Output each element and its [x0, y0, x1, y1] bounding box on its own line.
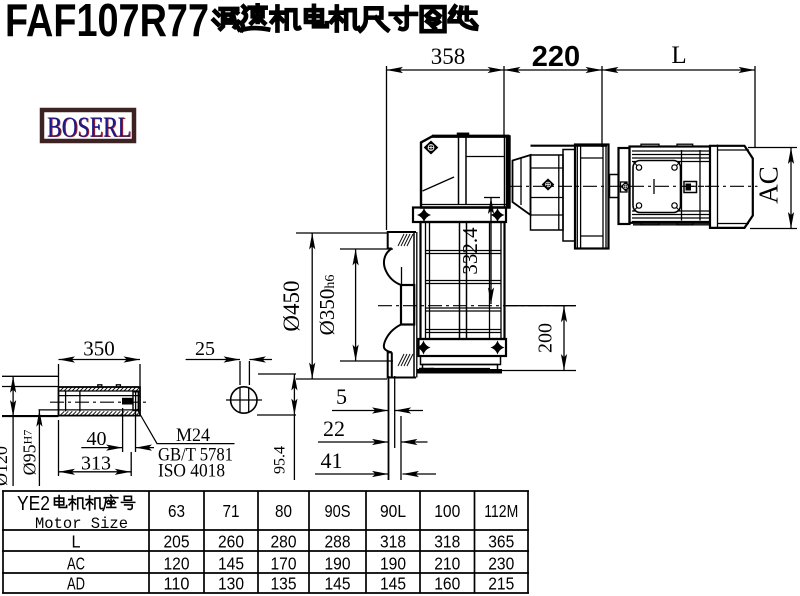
svg-text:318: 318: [380, 532, 406, 552]
svg-text:135: 135: [271, 573, 297, 593]
svg-text:L: L: [72, 532, 81, 552]
svg-text:160: 160: [434, 573, 460, 593]
svg-text:145: 145: [325, 573, 351, 593]
svg-text:Ø120: Ø120: [0, 446, 11, 486]
svg-text:358: 358: [431, 44, 466, 69]
svg-text:313: 313: [81, 453, 111, 475]
svg-text:FAF107R77: FAF107R77: [5, 0, 209, 46]
svg-text:80: 80: [275, 501, 292, 521]
svg-text:280: 280: [271, 532, 297, 552]
svg-text:210: 210: [434, 553, 460, 573]
svg-text:260: 260: [218, 532, 244, 552]
svg-text:170: 170: [271, 553, 297, 573]
svg-text:365: 365: [488, 532, 514, 552]
svg-text:230: 230: [488, 553, 514, 573]
svg-text:130: 130: [218, 573, 244, 593]
svg-text:190: 190: [380, 553, 406, 573]
svg-text:350: 350: [83, 337, 115, 361]
svg-text:BOSERL: BOSERL: [47, 113, 131, 144]
svg-text:M24: M24: [176, 425, 210, 446]
svg-text:145: 145: [380, 573, 406, 593]
svg-text:Motor Size: Motor Size: [35, 515, 128, 533]
svg-text:AD: AD: [67, 573, 85, 593]
svg-text:90S: 90S: [325, 501, 351, 521]
svg-text:110: 110: [164, 573, 190, 593]
svg-text:288: 288: [325, 532, 351, 552]
svg-text:Ø350h6: Ø350h6: [315, 275, 339, 336]
svg-text:145: 145: [218, 553, 244, 573]
svg-text:AC: AC: [67, 553, 85, 573]
svg-text:L: L: [671, 42, 686, 69]
svg-text:190: 190: [325, 553, 351, 573]
svg-text:AC: AC: [754, 166, 784, 204]
svg-text:318: 318: [434, 532, 460, 552]
svg-text:220: 220: [532, 41, 580, 73]
svg-text:63: 63: [168, 501, 185, 521]
svg-text:22: 22: [323, 416, 345, 441]
svg-text:200: 200: [535, 323, 557, 353]
svg-text:205: 205: [164, 532, 190, 552]
svg-text:5: 5: [336, 384, 347, 409]
svg-text:YE2: YE2: [17, 493, 50, 515]
svg-text:95.4: 95.4: [272, 446, 289, 474]
svg-text:90L: 90L: [380, 501, 406, 521]
svg-text:Ø95H7: Ø95H7: [20, 430, 40, 476]
svg-text:25: 25: [195, 338, 215, 360]
svg-text:332.4: 332.4: [458, 227, 482, 275]
svg-text:215: 215: [488, 573, 514, 593]
svg-text:100: 100: [434, 501, 460, 521]
svg-text:112M: 112M: [484, 501, 518, 521]
svg-text:41: 41: [321, 448, 343, 473]
svg-text:120: 120: [164, 553, 190, 573]
svg-text:Ø450: Ø450: [279, 280, 304, 331]
svg-text:71: 71: [223, 501, 240, 521]
svg-text:ISO 4018: ISO 4018: [158, 461, 225, 482]
svg-text:40: 40: [87, 428, 107, 450]
